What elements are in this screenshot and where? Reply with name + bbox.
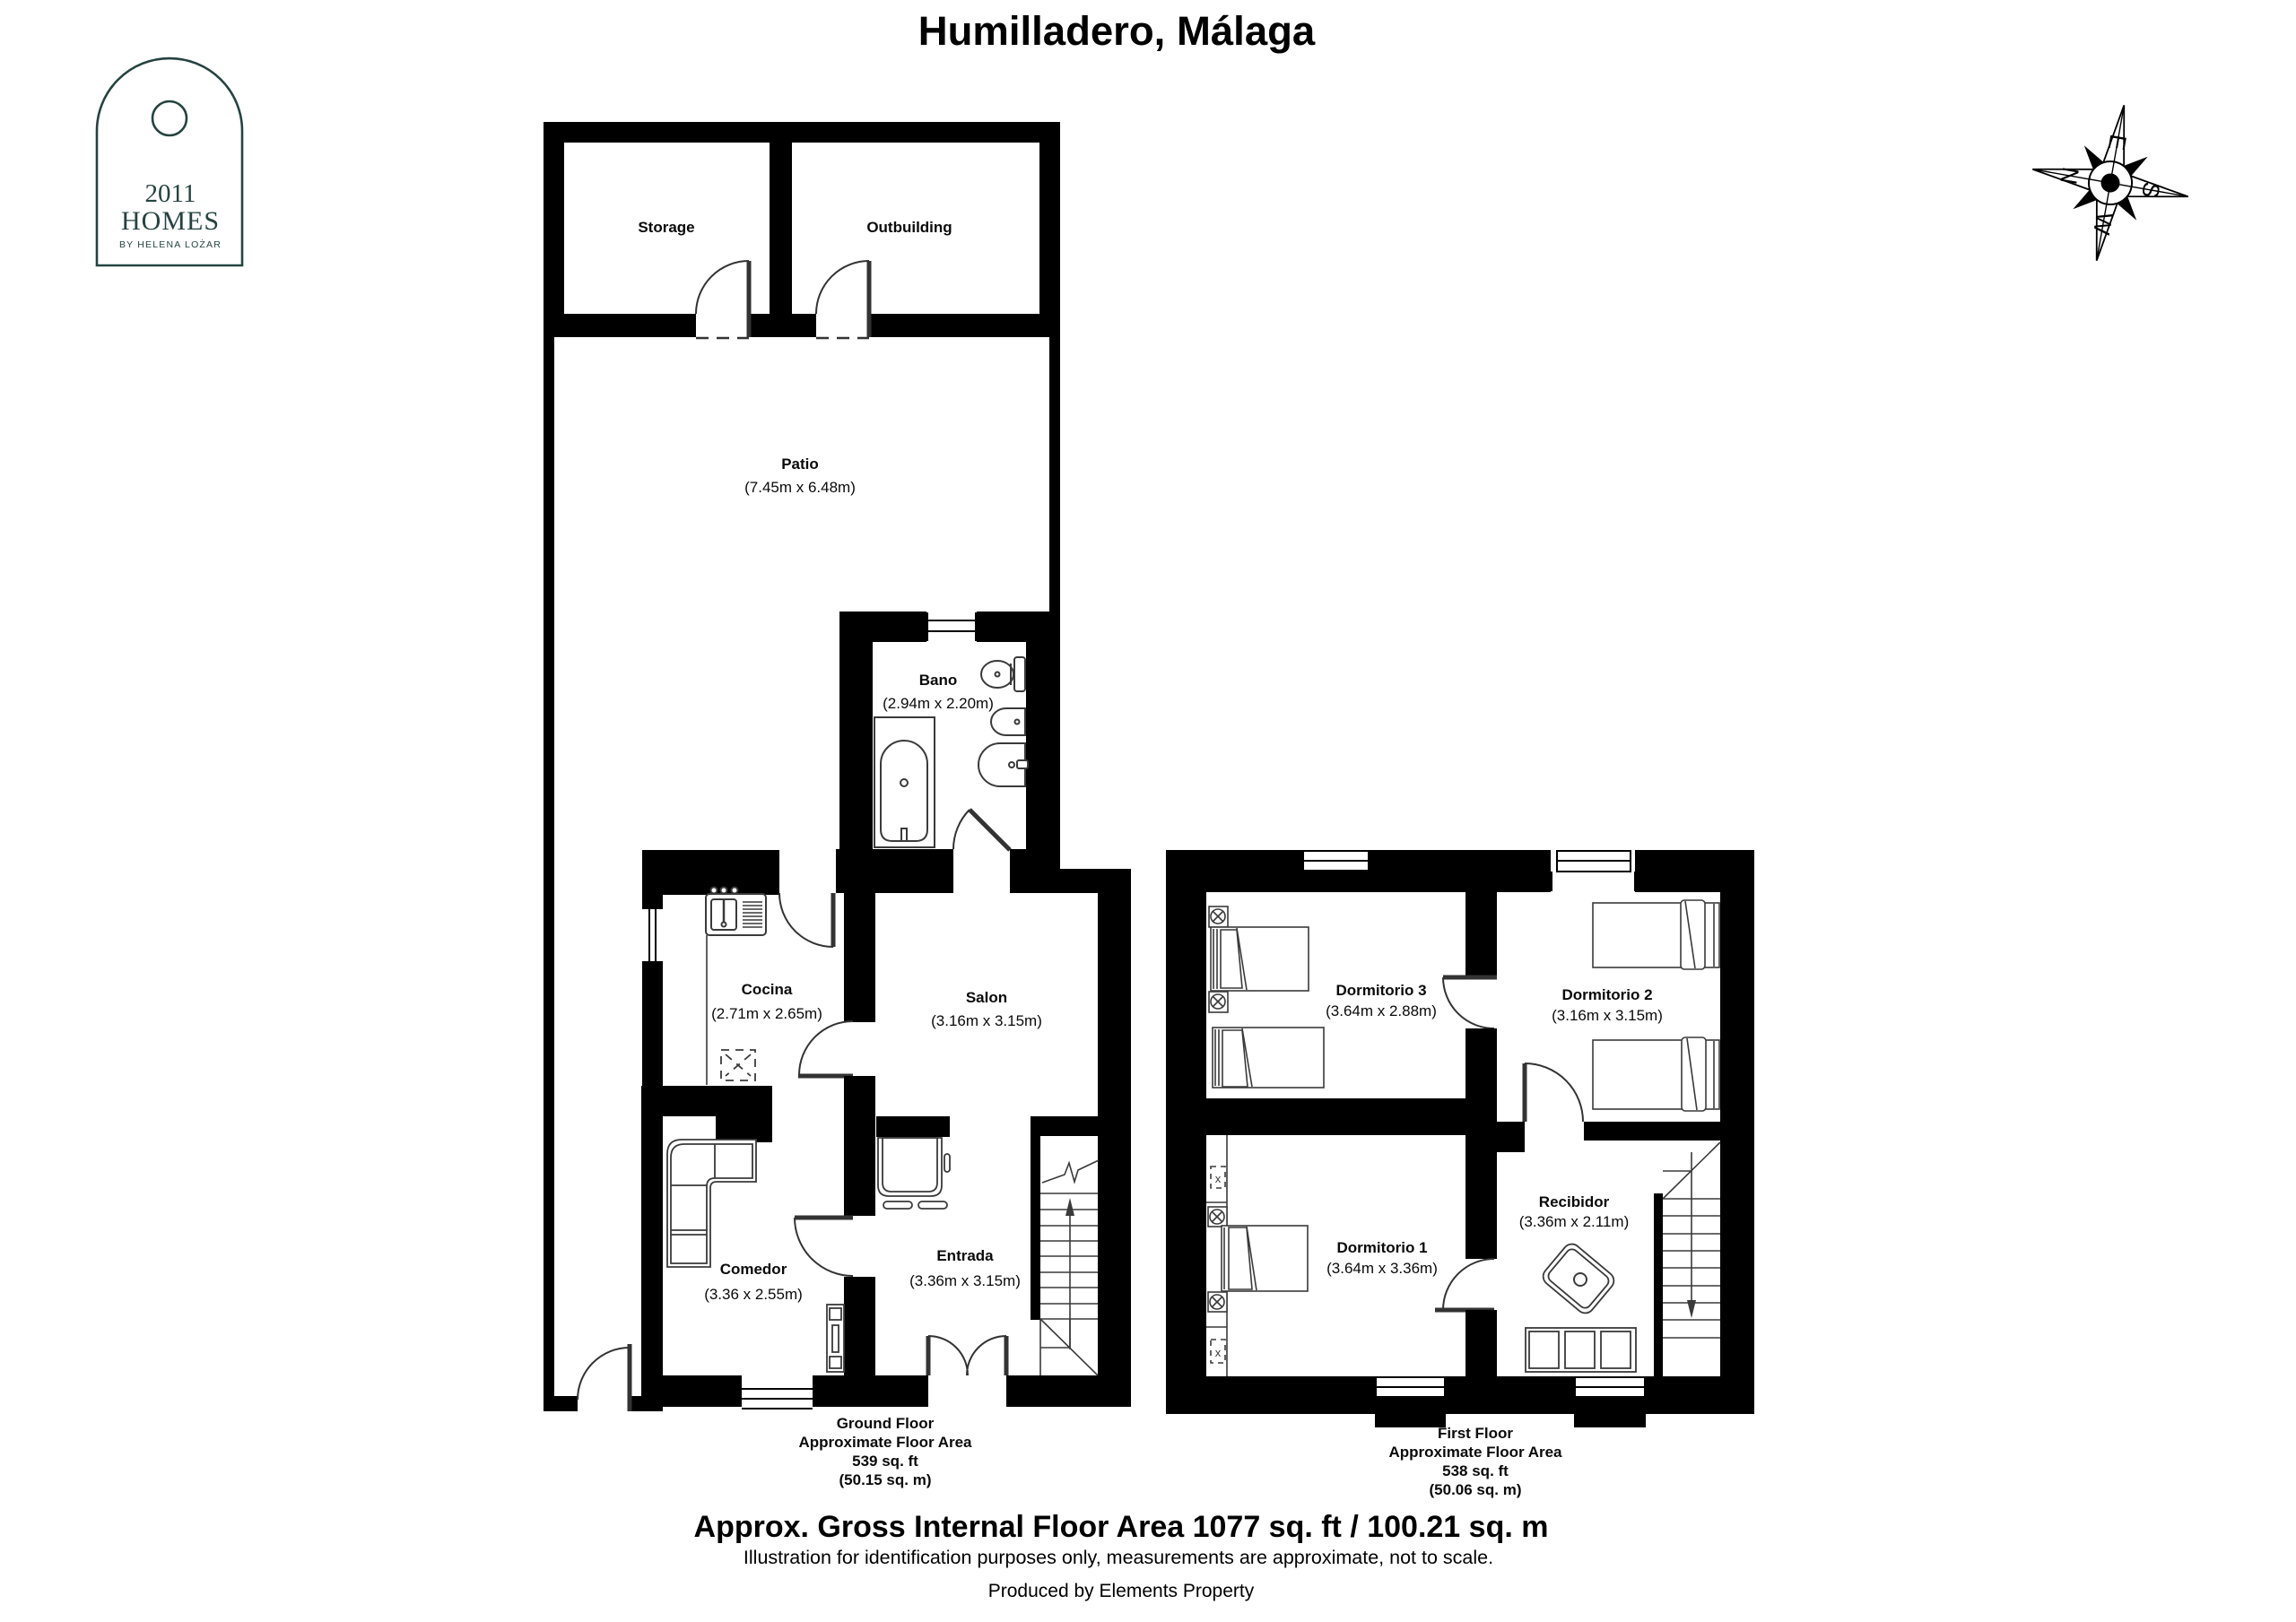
svg-text:Dormitorio 1: Dormitorio 1 bbox=[1336, 1239, 1427, 1256]
svg-text:Storage: Storage bbox=[638, 219, 694, 236]
svg-text:Cocina: Cocina bbox=[742, 981, 793, 998]
svg-text:(2.94m x 2.20m): (2.94m x 2.20m) bbox=[883, 695, 994, 712]
svg-text:Ground Floor: Ground Floor bbox=[837, 1415, 935, 1432]
svg-text:539 sq. ft: 539 sq. ft bbox=[852, 1453, 918, 1470]
svg-text:(3.36m x 2.11m): (3.36m x 2.11m) bbox=[1519, 1213, 1630, 1230]
svg-text:Illustration for identificatio: Illustration for identification purposes… bbox=[744, 1547, 1493, 1568]
svg-text:Approximate Floor Area: Approximate Floor Area bbox=[1388, 1444, 1562, 1461]
svg-text:Salon: Salon bbox=[966, 989, 1007, 1006]
svg-text:Outbuilding: Outbuilding bbox=[866, 219, 952, 236]
svg-text:HOMES: HOMES bbox=[121, 206, 220, 236]
svg-text:(3.16m x 3.15m): (3.16m x 3.15m) bbox=[931, 1012, 1042, 1029]
svg-text:(7.45m x 6.48m): (7.45m x 6.48m) bbox=[744, 479, 856, 496]
svg-text:538 sq. ft: 538 sq. ft bbox=[1442, 1462, 1509, 1479]
svg-text:Dormitorio 3: Dormitorio 3 bbox=[1335, 982, 1426, 999]
svg-text:Entrada: Entrada bbox=[936, 1247, 994, 1264]
svg-text:Approximate Floor Area: Approximate Floor Area bbox=[798, 1434, 972, 1451]
svg-text:x: x bbox=[1215, 1346, 1222, 1359]
svg-text:(3.64m x 2.88m): (3.64m x 2.88m) bbox=[1326, 1002, 1437, 1019]
svg-text:Humilladero, Málaga: Humilladero, Málaga bbox=[918, 8, 1316, 54]
svg-text:(3.16m x 3.15m): (3.16m x 3.15m) bbox=[1552, 1007, 1663, 1024]
svg-text:Recibidor: Recibidor bbox=[1539, 1193, 1610, 1210]
svg-text:Dormitorio 2: Dormitorio 2 bbox=[1561, 986, 1652, 1003]
svg-text:First Floor: First Floor bbox=[1438, 1425, 1513, 1442]
svg-text:Approx. Gross Internal Floor A: Approx. Gross Internal Floor Area 1077 s… bbox=[694, 1510, 1549, 1544]
svg-text:BY HELENA LOŻAR: BY HELENA LOŻAR bbox=[119, 239, 222, 250]
svg-text:Comedor: Comedor bbox=[720, 1261, 787, 1278]
svg-text:(2.71m x 2.65m): (2.71m x 2.65m) bbox=[711, 1005, 822, 1022]
svg-text:x: x bbox=[1215, 1172, 1222, 1185]
svg-text:Bano: Bano bbox=[919, 672, 958, 689]
svg-text:2011: 2011 bbox=[145, 179, 196, 208]
svg-text:Patio: Patio bbox=[781, 455, 819, 473]
svg-text:(50.15 sq. m): (50.15 sq. m) bbox=[839, 1471, 932, 1488]
svg-text:(3.64m x 3.36m): (3.64m x 3.36m) bbox=[1326, 1260, 1438, 1277]
svg-text:(3.36 x 2.55m): (3.36 x 2.55m) bbox=[704, 1286, 803, 1303]
svg-text:Produced by Elements Property: Produced by Elements Property bbox=[988, 1581, 1255, 1601]
svg-text:(3.36m x 3.15m): (3.36m x 3.15m) bbox=[909, 1272, 1021, 1289]
svg-text:(50.06 sq. m): (50.06 sq. m) bbox=[1430, 1481, 1522, 1498]
